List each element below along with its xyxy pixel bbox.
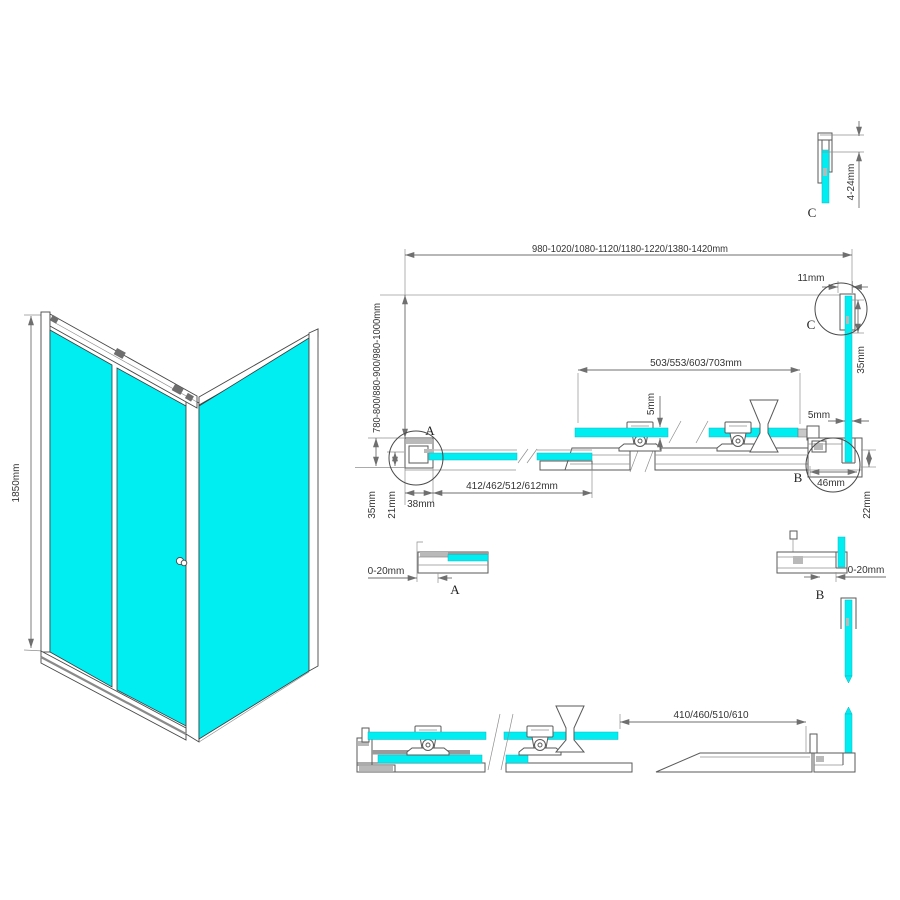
roller-icon bbox=[407, 726, 449, 755]
detail-c-top-section: 4-24mm C bbox=[808, 121, 864, 220]
fixing-flag bbox=[790, 531, 797, 539]
break-tip bbox=[845, 676, 852, 683]
side-panel-edge-view bbox=[841, 598, 856, 763]
break-mark bbox=[488, 714, 500, 770]
wall-profile-width-dim-text: 38mm bbox=[407, 499, 435, 510]
dim-top-gap: 11mm bbox=[797, 273, 868, 293]
break-tip bbox=[845, 707, 852, 714]
dim-glass-thickness: 5mm bbox=[646, 393, 660, 450]
dim-depth-range: 780-800/880-900/980-1000mm bbox=[372, 295, 405, 438]
side-glass-thickness-dim-text: 5mm bbox=[808, 410, 830, 421]
dim-side-profile-height: 35mm bbox=[852, 300, 867, 374]
door-glass-width-dim-text: 503/553/603/703mm bbox=[650, 358, 742, 369]
sliding-door-glass-panel bbox=[117, 368, 186, 726]
fixed-glass-section bbox=[429, 453, 517, 460]
fixed-glass-bottom bbox=[506, 755, 528, 763]
corner-profile-post bbox=[186, 396, 199, 742]
side-profile-height-dim-text: 35mm bbox=[856, 346, 867, 374]
break-mark bbox=[518, 449, 528, 463]
side-glass-edge-strip bbox=[845, 600, 852, 676]
profile-lip bbox=[829, 140, 832, 172]
door-handle-icon bbox=[556, 706, 584, 752]
sliding-door-section bbox=[575, 400, 819, 452]
detail-b-label: B bbox=[794, 470, 803, 485]
drawing-svg: 1850mm bbox=[0, 0, 900, 900]
total-height-dim-text: 1850mm bbox=[11, 464, 22, 503]
dim-overall-width: 980-1020/1080-1120/1180-1220/1380-1420mm bbox=[405, 244, 852, 255]
fixed-glass-enlarged bbox=[448, 555, 488, 562]
detail-b-enlarged: 0-20mm B bbox=[777, 531, 886, 602]
shower-enclosure-technical-drawing: 1850mm bbox=[0, 0, 900, 900]
fixing-flag bbox=[810, 734, 817, 753]
detail-c-callout-circle bbox=[815, 283, 867, 335]
depth-range-dim-text: 780-800/880-900/980-1000mm bbox=[372, 303, 383, 433]
detail-c-label: C bbox=[807, 317, 816, 332]
corner-profile-bottom bbox=[814, 753, 855, 772]
break-mark bbox=[527, 449, 537, 463]
detail-c-label: C bbox=[808, 205, 817, 220]
side-glass-plan bbox=[840, 294, 855, 462]
roller-icon bbox=[519, 726, 561, 755]
door-handle-icon bbox=[750, 400, 778, 452]
bottom-cross-section: 410/460/510/610 bbox=[357, 706, 855, 772]
dim-side-glass-thickness: 5mm bbox=[808, 410, 869, 421]
glass-to-wall-dim-text: 21mm bbox=[387, 491, 398, 519]
dim-wall-profile-width: 38mm bbox=[405, 468, 435, 510]
wall-profile-fixed-glass bbox=[355, 438, 592, 470]
top-adjust-dim-text: 4-24mm bbox=[846, 164, 857, 201]
fixed-glass-width-dim-text: 412/462/512/612mm bbox=[466, 481, 558, 492]
fixed-glass-bottom bbox=[378, 755, 482, 763]
door-glass-bottom bbox=[368, 732, 486, 740]
tapered-rail bbox=[656, 753, 812, 772]
wall-profile-depth-dim-text: 35mm bbox=[367, 491, 378, 519]
left-wall-profile bbox=[41, 312, 50, 652]
adjust-range-b-dim-text: 0-20mm bbox=[848, 565, 885, 576]
dim-fixed-glass-width: 412/462/512/612mm bbox=[433, 464, 592, 498]
top-cross-section: 980-1020/1080-1120/1180-1220/1380-1420mm… bbox=[355, 244, 876, 519]
side-glass-panel bbox=[199, 338, 309, 739]
top-gap-dim-text: 11mm bbox=[797, 273, 824, 284]
overall-width-dim-text: 980-1020/1080-1120/1180-1220/1380-1420mm bbox=[532, 244, 728, 255]
door-glass-bottom bbox=[504, 732, 618, 740]
corner-profile-width-dim-text: 46mm bbox=[817, 478, 845, 489]
dim-bottom-glass-width: 410/460/510/610 bbox=[620, 710, 806, 752]
bottom-glass-width-dim-text: 410/460/510/610 bbox=[673, 710, 749, 721]
side-wall-profile bbox=[309, 329, 318, 671]
front-fixed-glass-panel bbox=[50, 330, 112, 687]
detail-a-enlarged: 0-20mm A bbox=[368, 542, 488, 597]
fixed-glass-section bbox=[537, 453, 592, 460]
break-mark bbox=[696, 421, 708, 443]
dim-wall-profile-depth: 35mm bbox=[367, 438, 405, 519]
detail-b-label: B bbox=[816, 587, 825, 602]
glass-end-bolt bbox=[798, 429, 807, 437]
corner-profile-depth-dim-text: 22mm bbox=[862, 491, 873, 519]
door-glass-section bbox=[575, 428, 668, 437]
glass-thickness-dim-text: 5mm bbox=[646, 393, 657, 415]
detail-a-label: A bbox=[450, 582, 460, 597]
adjust-range-a-dim-text: 0-20mm bbox=[368, 566, 405, 577]
profile-top bbox=[818, 133, 832, 140]
bottom-track bbox=[506, 763, 632, 772]
door-glass-section bbox=[709, 428, 798, 437]
break-mark bbox=[669, 421, 681, 443]
side-glass-enlarged bbox=[838, 537, 845, 567]
detail-a-label: A bbox=[425, 423, 435, 438]
side-glass-edge bbox=[822, 150, 829, 203]
isometric-view: 1850mm bbox=[11, 312, 318, 742]
dim-corner-profile-depth: 22mm bbox=[861, 450, 876, 519]
